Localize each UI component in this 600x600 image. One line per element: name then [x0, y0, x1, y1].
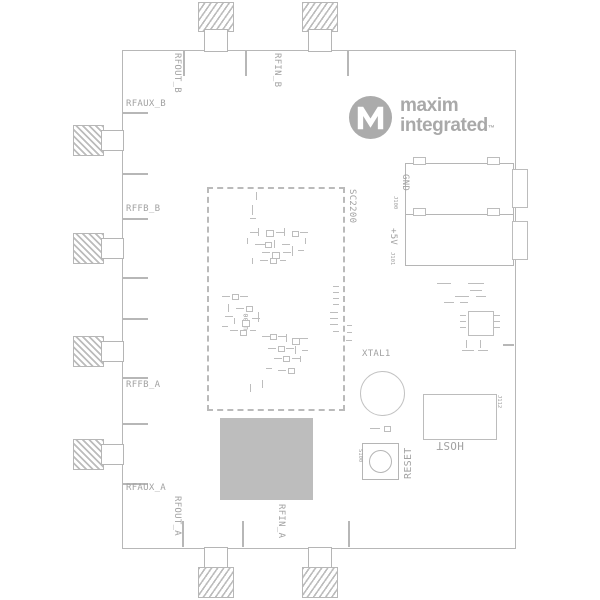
silkscreen-mark	[460, 315, 466, 316]
edge-tick	[245, 50, 247, 76]
silkscreen-mark	[286, 348, 294, 349]
sma-connector-rffb-b	[73, 233, 104, 264]
smd-component	[240, 330, 247, 336]
edge-tick	[122, 112, 148, 114]
silkscreen-mark	[252, 205, 253, 215]
silkscreen-mark	[262, 252, 270, 253]
label-xtal1: XTAL1	[362, 350, 391, 359]
jack-terminal	[512, 221, 528, 260]
sma-connector-rfaux-b	[73, 125, 104, 156]
edge-tick	[122, 173, 148, 175]
silkscreen-mark	[228, 304, 229, 312]
host-connector	[423, 394, 497, 440]
edge-tick	[122, 377, 148, 379]
jack-tab	[487, 157, 500, 165]
ground-pad-area	[220, 418, 313, 500]
silkscreen-mark	[333, 304, 339, 305]
silkscreen-mark	[460, 321, 466, 322]
silkscreen-mark	[274, 358, 282, 359]
smd-component	[266, 230, 274, 237]
label-host: HOST	[431, 440, 469, 451]
smd-component	[232, 294, 239, 300]
label-5v: +5V	[388, 228, 397, 245]
silkscreen-mark	[330, 324, 338, 325]
silkscreen-mark	[247, 238, 248, 244]
silkscreen-mark	[278, 370, 286, 371]
silkscreen-mark	[295, 346, 296, 354]
jack-tab	[413, 157, 426, 165]
silkscreen-mark	[330, 318, 338, 319]
label-gnd: GND	[400, 174, 409, 191]
silkscreen-mark	[236, 308, 244, 309]
smd-component	[278, 346, 285, 352]
silkscreen-mark	[222, 326, 228, 327]
silkscreen-mark	[258, 312, 259, 322]
sma-connector-rffb-a-stem	[101, 341, 124, 362]
sma-connector-rfaux-b-stem	[101, 130, 124, 151]
silkscreen-mark	[278, 336, 286, 337]
silkscreen-mark	[476, 296, 486, 297]
sma-connector-rfout-a	[198, 567, 234, 598]
silkscreen-mark	[260, 260, 268, 261]
sma-connector-rffb-b-stem	[101, 238, 124, 259]
sma-connector-rfin-b	[302, 2, 338, 32]
silkscreen-mark	[292, 246, 293, 256]
silkscreen-mark	[283, 252, 291, 253]
logo-line2: integrated	[400, 115, 488, 136]
label-j100: J100	[392, 196, 398, 209]
label-s100: S100	[357, 449, 363, 462]
silkscreen-mark	[300, 356, 301, 362]
silkscreen-mark	[466, 340, 467, 348]
smd-component	[270, 334, 277, 340]
crystal-xtal1	[360, 371, 405, 416]
label-rffb-b: RFFB_B	[126, 205, 160, 214]
jack-tab	[487, 208, 500, 216]
silkscreen-mark	[262, 336, 270, 337]
label-rfout-b: RFOUT_B	[172, 53, 181, 93]
smd-component	[292, 231, 299, 237]
silkscreen-mark	[250, 218, 256, 219]
label-j112: J112	[496, 395, 502, 408]
silkscreen-mark	[250, 384, 251, 392]
silkscreen-mark	[300, 338, 308, 339]
reset-button-cap	[369, 450, 392, 473]
label-rfin-b: RFIN_B	[272, 53, 281, 87]
silkscreen-mark	[252, 258, 253, 264]
sma-connector-rfaux-a-stem	[101, 444, 124, 465]
silkscreen-mark	[333, 298, 339, 299]
jack-tab	[413, 208, 426, 216]
silkscreen-mark	[470, 290, 482, 291]
silkscreen-mark	[268, 348, 276, 349]
silkscreen-mark	[455, 296, 469, 297]
label-rffb-a: RFFB_A	[126, 381, 160, 390]
smd-component	[468, 311, 494, 336]
label-j101: J101	[389, 252, 395, 265]
silkscreen-mark	[460, 327, 466, 328]
edge-tick	[122, 277, 148, 279]
silkscreen-mark	[494, 327, 500, 328]
edge-tick	[183, 50, 185, 76]
sma-connector-rfout-b	[198, 2, 234, 32]
silkscreen-mark	[256, 192, 257, 200]
logo-tm: ™	[488, 125, 495, 132]
silkscreen-mark	[346, 340, 352, 341]
edge-tick	[122, 318, 148, 320]
label-rfaux-a: RFAUX_A	[126, 484, 166, 493]
silkscreen-mark	[333, 331, 339, 332]
edge-tick	[182, 521, 184, 547]
edge-tick	[122, 218, 148, 220]
silkscreen-mark	[300, 232, 308, 233]
sma-connector-rfin-b-stem	[308, 29, 332, 52]
label-rfout-a: RFOUT_A	[172, 496, 181, 536]
silkscreen-mark	[437, 283, 451, 284]
silkscreen-mark	[347, 332, 352, 333]
silkscreen-mark	[333, 286, 339, 287]
label-rfin-a: RFIN_A	[276, 504, 285, 538]
silkscreen-mark	[250, 232, 258, 233]
silkscreen-mark	[222, 296, 230, 297]
edge-tick	[503, 344, 514, 346]
silkscreen-mark	[468, 283, 484, 284]
silkscreen-mark	[276, 232, 284, 233]
silkscreen-mark	[282, 244, 290, 245]
silkscreen-mark	[274, 240, 275, 248]
smd-component	[283, 356, 290, 362]
sma-connector-rfaux-a	[73, 439, 104, 470]
silkscreen-mark	[462, 350, 474, 351]
silkscreen-mark	[266, 368, 272, 369]
silkscreen-mark	[262, 380, 263, 388]
sma-connector-rfout-b-stem	[204, 29, 228, 52]
banana-jack-5v	[405, 214, 514, 266]
sma-connector-rffb-a	[73, 336, 104, 367]
maxim-logo: maxim integrated™	[348, 94, 508, 142]
silkscreen-mark	[230, 330, 238, 331]
silkscreen-mark	[298, 250, 304, 251]
silkscreen-mark	[444, 302, 454, 303]
silkscreen-mark	[255, 244, 265, 245]
maxim-m-icon	[348, 95, 393, 140]
edge-tick	[242, 521, 244, 547]
label-rfaux-b: RFAUX_B	[126, 100, 166, 109]
silkscreen-mark	[347, 325, 352, 326]
silkscreen-mark	[333, 292, 339, 293]
smd-component	[384, 426, 391, 432]
silkscreen-mark	[460, 302, 468, 303]
sma-connector-rfin-a	[302, 567, 338, 598]
edge-tick	[347, 50, 349, 76]
silkscreen-mark	[286, 334, 287, 342]
smd-component	[246, 306, 253, 312]
silkscreen-mark	[478, 350, 488, 351]
label-reset: RESET	[404, 447, 414, 479]
silkscreen-mark	[494, 315, 500, 316]
label-sc2200: SC2200	[347, 189, 356, 223]
smd-component	[265, 242, 272, 248]
silkscreen-mark	[225, 316, 233, 317]
edge-tick	[348, 521, 350, 547]
silkscreen-mark	[305, 238, 306, 244]
silkscreen-mark	[250, 330, 256, 331]
pcb-drawing-canvas: { "logo": { "m": "M", "line1": "maxim", …	[0, 0, 600, 600]
smd-component	[292, 338, 300, 345]
jack-terminal	[512, 169, 528, 208]
silkscreen-mark	[370, 428, 380, 429]
silkscreen-mark	[284, 228, 285, 236]
maxim-logo-text: maxim integrated™	[400, 96, 495, 139]
silkscreen-mark	[258, 228, 259, 236]
logo-line1: maxim	[400, 95, 458, 116]
edge-tick	[122, 423, 148, 425]
silkscreen-mark	[302, 350, 308, 351]
silkscreen-mark	[280, 260, 286, 261]
silkscreen-mark	[234, 318, 235, 324]
sc2200-dashed-outline	[207, 187, 345, 411]
smd-component	[288, 368, 295, 374]
smd-component	[242, 320, 250, 327]
silkscreen-mark	[330, 312, 338, 313]
silkscreen-mark	[292, 358, 300, 359]
smd-component	[270, 258, 277, 264]
silkscreen-mark	[240, 296, 248, 297]
silkscreen-mark	[480, 340, 481, 348]
silkscreen-mark	[494, 321, 500, 322]
